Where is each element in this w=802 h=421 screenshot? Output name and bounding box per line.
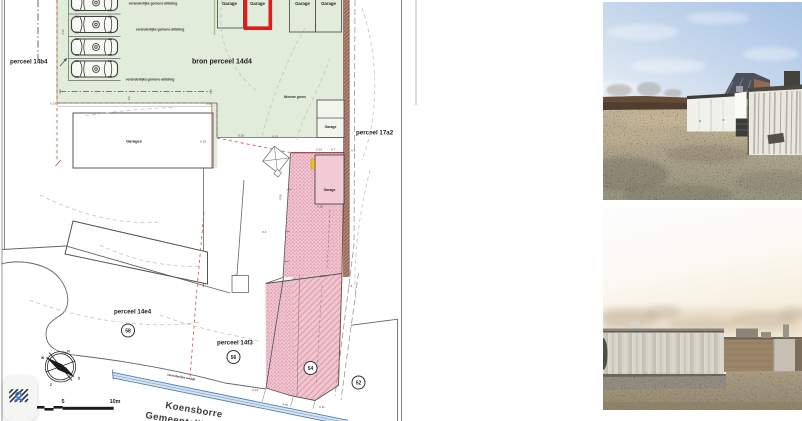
- svg-text:X.14: X.14: [316, 148, 322, 152]
- svg-text:Garages: Garages: [126, 139, 143, 144]
- svg-text:X.11: X.11: [319, 405, 325, 409]
- svg-text:veranderlijke gemene afdeling: veranderlijke gemene afdeling: [126, 78, 175, 82]
- svg-text:X.7: X.7: [331, 148, 336, 152]
- svg-text:Garage: Garage: [325, 125, 337, 129]
- svg-text:perceel 14b4: perceel 14b4: [10, 59, 48, 66]
- svg-text:56: 56: [231, 355, 237, 361]
- svg-text:X.12: X.12: [320, 274, 326, 278]
- svg-text:58: 58: [125, 329, 131, 335]
- svg-text:X.6: X.6: [348, 284, 353, 288]
- svg-text:54: 54: [308, 366, 314, 372]
- svg-text:Garage: Garage: [321, 1, 336, 6]
- svg-text:veranderlijke gemene afdeling: veranderlijke gemene afdeling: [129, 2, 178, 6]
- svg-text:veranderlijke gemene afdeling: veranderlijke gemene afdeling: [136, 28, 185, 32]
- svg-text:5: 5: [62, 399, 65, 405]
- svg-text:perceel 14e4: perceel 14e4: [114, 309, 152, 316]
- svg-text:10m: 10m: [110, 399, 121, 405]
- svg-text:X.4: X.4: [262, 230, 267, 234]
- svg-text:X.13: X.13: [252, 388, 258, 392]
- svg-text:X.19: X.19: [50, 102, 56, 106]
- svg-text:Nieuwe grens: Nieuwe grens: [284, 95, 306, 99]
- svg-text:perceel 17a2: perceel 17a2: [356, 130, 394, 137]
- svg-text:Garage: Garage: [250, 1, 265, 6]
- svg-text:Z: Z: [50, 383, 52, 387]
- svg-text:X.16: X.16: [238, 134, 244, 138]
- svg-text:X.15: X.15: [272, 135, 278, 139]
- svg-text:X.15: X.15: [200, 140, 206, 144]
- svg-text:X.18: X.18: [206, 102, 212, 106]
- svg-text:X.9: X.9: [351, 149, 356, 153]
- svg-text:Garage: Garage: [222, 1, 237, 6]
- svg-text:Garage: Garage: [295, 1, 310, 6]
- svg-text:2.50: 2.50: [61, 29, 65, 35]
- svg-text:perceel 14f3: perceel 14f3: [217, 340, 253, 347]
- svg-text:X.10: X.10: [317, 205, 323, 209]
- svg-text:4.50: 4.50: [278, 194, 282, 200]
- svg-text:bron perceel 14d4: bron perceel 14d4: [192, 59, 252, 66]
- svg-text:52: 52: [356, 381, 362, 387]
- svg-text:W: W: [41, 356, 44, 360]
- svg-text:Garage: Garage: [324, 188, 336, 192]
